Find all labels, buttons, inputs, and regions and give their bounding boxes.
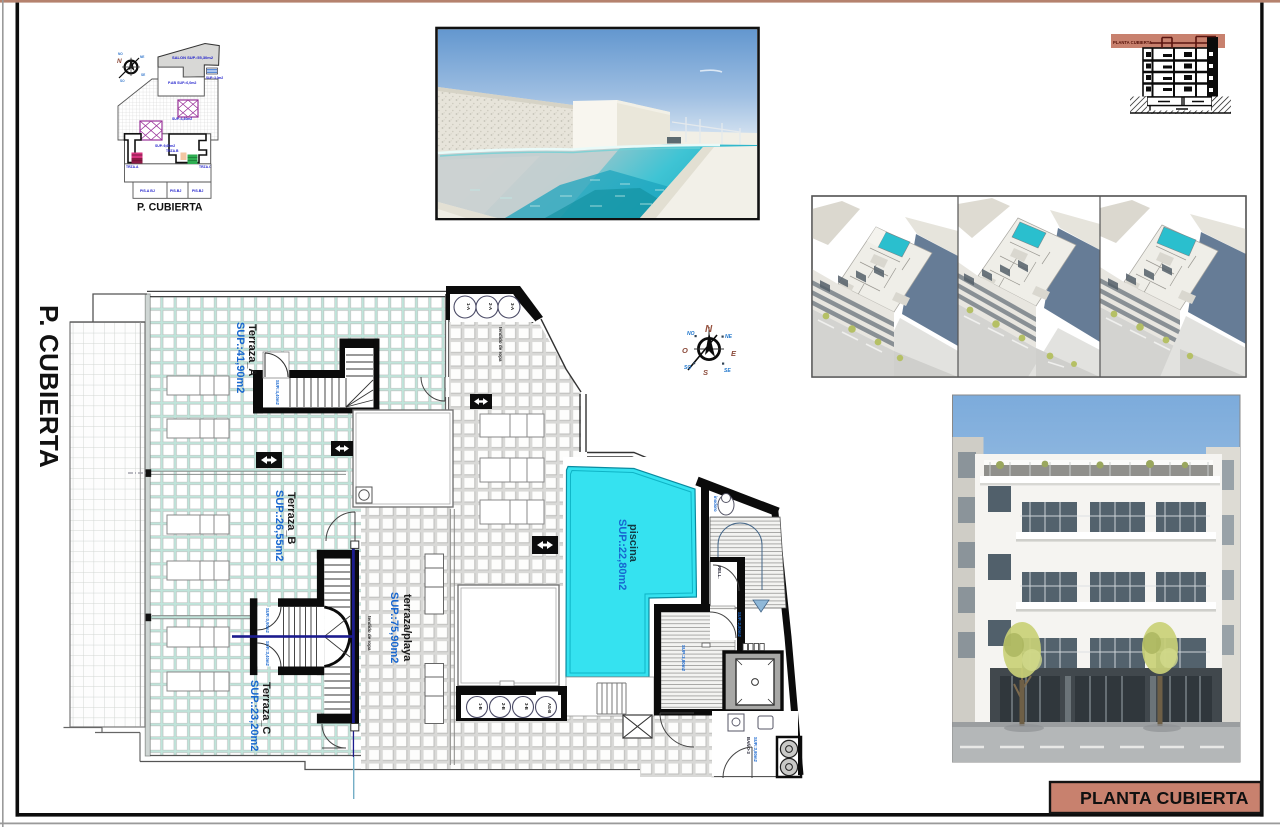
svg-text:N: N [117,58,122,65]
svg-text:RELL.: RELL. [717,566,722,579]
svg-text:SUP.:3,40m2: SUP.:3,40m2 [265,641,270,667]
svg-text:SUP.:3,80m2: SUP.:3,80m2 [753,737,758,763]
svg-text:PIS.BJ: PIS.BJ [192,189,203,193]
svg-text:TRZA.B: TRZA.B [166,149,179,153]
svg-text:N: N [705,324,713,335]
svg-text:AS-B: AS-B [547,703,552,713]
svg-text:NE: NE [725,334,733,340]
svg-text:3-B: 3-B [524,703,529,710]
svg-text:1-A: 1-A [466,303,471,311]
svg-text:1-B: 1-B [478,703,483,710]
svg-text:SUP.:3,80m2: SUP.:3,80m2 [681,645,686,672]
svg-text:PLANTA CUBIERTA: PLANTA CUBIERTA [1113,40,1152,45]
svg-text:SALON SUP.:55,30m2: SALON SUP.:55,30m2 [172,55,214,60]
svg-text:PIS.A BJ: PIS.A BJ [140,189,155,193]
svg-text:Terraza_B: Terraza_B [285,492,297,544]
svg-text:P. CUBIERTA: P. CUBIERTA [34,305,64,468]
svg-text:SUP.:22,80m2: SUP.:22,80m2 [616,519,628,590]
svg-text:SUP.:23,20m2: SUP.:23,20m2 [248,680,260,751]
svg-text:O: O [682,346,688,355]
svg-text:SUP.:0,90m2: SUP.:0,90m2 [265,608,270,634]
svg-text:3-A: 3-A [510,303,515,311]
svg-text:SUP.:2,80m2: SUP.:2,80m2 [737,612,742,638]
svg-text:NE: NE [140,55,144,59]
svg-text:NO: NO [687,331,695,337]
svg-text:NO: NO [118,52,123,56]
svg-text:TRZA.A: TRZA.A [126,165,139,169]
svg-text:P.AB SUP.:6,0m2: P.AB SUP.:6,0m2 [168,81,196,85]
svg-text:2-A: 2-A [488,303,493,311]
svg-text:SUP.:4,40m2: SUP.:4,40m2 [275,380,280,406]
svg-text:SO: SO [684,365,691,371]
svg-text:SE: SE [141,73,145,77]
svg-text:terraza/playa: terraza/playa [401,594,413,662]
svg-text:Terraza_C: Terraza_C [260,682,272,734]
svg-text:SUP.:75,90m2: SUP.:75,90m2 [388,592,400,663]
svg-text:BAÑO-3: BAÑO-3 [746,737,751,754]
svg-text:SUP.:9,60m2: SUP.:9,60m2 [155,144,175,148]
svg-text:PLANTA CUBIERTA: PLANTA CUBIERTA [1080,788,1249,808]
svg-text:TRZA.C: TRZA.C [199,165,212,169]
svg-text:S: S [703,368,708,377]
svg-text:tendido de ropa: tendido de ropa [367,616,372,651]
svg-text:SO: SO [120,79,125,83]
svg-text:SUP.:26,55m2: SUP.:26,55m2 [273,490,285,561]
svg-text:P. CUBIERTA: P. CUBIERTA [137,202,203,214]
svg-text:inodoro: inodoro [713,496,718,512]
svg-text:PIS.BJ: PIS.BJ [170,189,181,193]
svg-text:SUP.:41,90m2: SUP.:41,90m2 [234,322,246,393]
svg-text:Terraza_A: Terraza_A [246,324,258,376]
svg-text:SUP.:4,40m2: SUP.:4,40m2 [172,117,192,121]
svg-text:SE: SE [724,368,731,374]
svg-text:tendido de ropa: tendido de ropa [498,327,503,362]
svg-text:2-B: 2-B [501,703,506,710]
svg-text:SUP.:3,0m2: SUP.:3,0m2 [206,76,223,80]
